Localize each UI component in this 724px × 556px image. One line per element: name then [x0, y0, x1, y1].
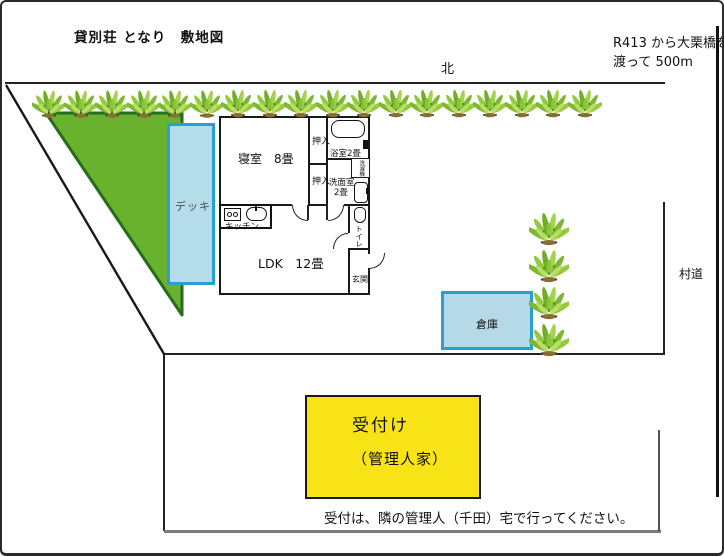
toilet-label: トイレ [355, 225, 363, 248]
wall-closet-divider [308, 163, 328, 165]
door-arc-entrance [369, 253, 385, 269]
sink-tap-icon [255, 205, 257, 211]
lower-site-bottom-line [164, 530, 661, 533]
laundry-label: 洗濯機 [358, 160, 364, 177]
lower-site-left-line [163, 354, 165, 531]
site-plan-canvas: 貸別荘 となり 敷地図 R413 から大栗橋を 渡って 500m 北 村道 デッ… [0, 0, 724, 556]
hedge-triangle [46, 113, 182, 315]
washer-tap-icon [366, 188, 369, 194]
deck-label: デッキ [175, 198, 211, 214]
toilet-icon [354, 207, 366, 223]
warehouse-label: 倉庫 [476, 316, 498, 332]
page-title: 貸別荘 となり 敷地図 [74, 26, 224, 46]
village-road-east-edge [716, 26, 719, 497]
entrance-label: 玄関 [352, 274, 368, 285]
reception-title: 受付け [352, 411, 479, 436]
ldk-label: LDK 12畳 [258, 253, 324, 272]
lower-site-right-line [658, 430, 660, 531]
wall-toilet-left-lower [348, 249, 350, 295]
village-road-label: 村道 [679, 265, 703, 282]
reception-subtitle: （管理人家） [352, 448, 479, 469]
bath-tap-icon [363, 140, 368, 149]
stove-burner-icon [227, 212, 232, 217]
reception-box: 受付け （管理人家） [305, 395, 481, 499]
closet-lower-label: 押入 [312, 174, 330, 187]
wall-toilet-left-upper [348, 205, 350, 233]
deck-area: デッキ [167, 123, 215, 285]
kitchen-label: キッチン [225, 220, 259, 232]
stove-burner-icon [233, 212, 238, 217]
bathtub-icon [331, 120, 365, 138]
closet-upper-label: 押入 [312, 134, 330, 147]
upper-site-bottom-line [163, 353, 665, 355]
reception-caption: 受付は、隣の管理人（千田）宅で行ってください。 [324, 507, 633, 527]
warehouse-area: 倉庫 [441, 291, 533, 350]
wall-bedroom-right [308, 116, 310, 205]
bath-label: 浴室2畳 [330, 147, 361, 159]
wall-main-b [308, 204, 328, 206]
bedroom-label: 寝室 8畳 [238, 150, 294, 167]
access-note-line1: R413 から大栗橋を [613, 32, 724, 51]
west-boundary-diagonal [6, 85, 164, 354]
access-note-line2: 渡って 500m [613, 51, 693, 70]
north-label: 北 [441, 58, 454, 77]
wall-closet-right [326, 116, 328, 205]
laundry-closet: 洗濯機 [351, 158, 370, 178]
east-boundary-upper [663, 202, 665, 354]
north-boundary-line [5, 82, 665, 84]
wall-toilet-entrance [348, 248, 370, 250]
washroom-size-label: 2畳 [334, 186, 348, 198]
